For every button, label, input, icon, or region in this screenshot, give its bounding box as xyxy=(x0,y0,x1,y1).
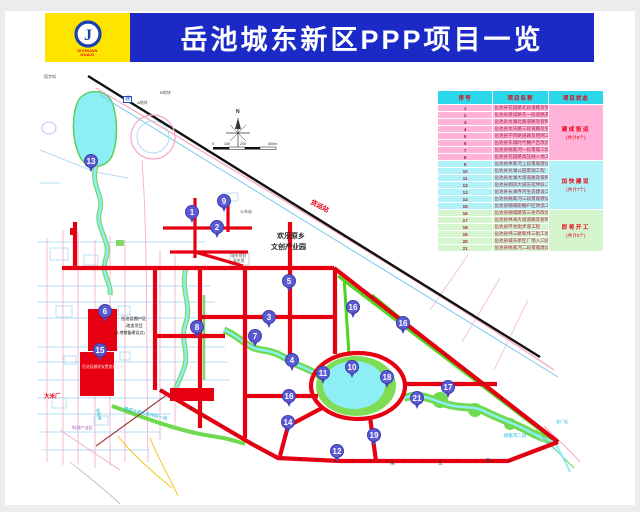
title-banner: 岳池城东新区PPP项目一览 xyxy=(130,13,594,62)
col-header-name: 项目名称 xyxy=(493,91,548,105)
project-name: 岳池县纬三路和纬三街工程 xyxy=(493,231,548,238)
logo-box: J SICHUAN HUAXI xyxy=(45,13,130,62)
svg-text:10: 10 xyxy=(348,363,357,372)
project-marker-14: 14 xyxy=(282,416,295,434)
page-title: 岳池城东新区PPP项目一览 xyxy=(180,18,543,57)
frame-left xyxy=(0,0,5,512)
svg-text:11: 11 xyxy=(319,369,328,378)
compass-rose xyxy=(226,118,250,148)
svg-text:4: 4 xyxy=(290,356,295,365)
svg-text:2: 2 xyxy=(215,223,220,232)
project-no: 2 xyxy=(438,112,493,119)
project-no: 5 xyxy=(438,133,493,140)
frame-right xyxy=(635,0,640,512)
poster-root: { "header": { "title": "岳池城东新区PPP项目一览", … xyxy=(0,0,640,512)
project-name: 岳池县姚家河二段景观建设工程 xyxy=(493,245,548,252)
svg-text:9: 9 xyxy=(222,197,227,206)
project-no: 20 xyxy=(438,238,493,245)
svg-text:16: 16 xyxy=(349,303,358,312)
project-marker-16: 16 xyxy=(397,317,410,335)
col-header-status: 项目状态 xyxy=(548,91,603,105)
svg-text:3: 3 xyxy=(267,313,272,322)
project-marker-4: 4 xyxy=(286,354,299,372)
project-name: 岳池县姚家河一段景观工程 xyxy=(493,147,548,154)
svg-text:16: 16 xyxy=(399,319,408,328)
project-name: 岳池县学府路道路及管网工程 xyxy=(493,133,548,140)
project-no: 1 xyxy=(438,105,493,112)
project-name: 岳池县顺城路等三条市政道路建设工程 xyxy=(493,210,548,217)
project-no: 10 xyxy=(438,168,493,175)
project-marker-5: 5 xyxy=(283,275,296,293)
project-no: 11 xyxy=(438,175,493,182)
svg-text:19: 19 xyxy=(370,431,379,440)
svg-text:16: 16 xyxy=(285,392,294,401)
project-marker-16: 16 xyxy=(283,390,296,408)
project-no: 16 xyxy=(438,210,493,217)
table-header-row: 序号 项目名称 项目状态 xyxy=(438,91,604,105)
project-name: 岳池县环龙街步道工程 xyxy=(493,224,548,231)
red-road-network xyxy=(62,222,558,461)
project-name: 岳池县建设路东一段道路及管网工程 xyxy=(493,112,548,119)
svg-text:8: 8 xyxy=(195,323,200,332)
boundary-ellipse xyxy=(42,122,56,134)
status-cell: 加快建设(共计7个) xyxy=(548,161,603,210)
svg-text:6: 6 xyxy=(103,307,108,316)
project-name: 岳池县花园路北段道路及管网工程 xyxy=(493,105,548,112)
project-no: 6 xyxy=(438,140,493,147)
project-name: 岳池县花园路高压线入地工程 xyxy=(493,154,548,161)
scale-bar xyxy=(213,147,276,150)
svg-text:7: 7 xyxy=(253,332,258,341)
project-row: 16岳池县顺城路等三条市政道路建设工程即将开工(共计6个) xyxy=(438,210,604,217)
svg-text:12: 12 xyxy=(333,447,342,456)
project-name: 岳池县龙湖北路道路及管网工程 xyxy=(493,119,548,126)
logo-letter: J xyxy=(84,27,92,44)
project-marker-2: 2 xyxy=(211,221,224,239)
project-no: 21 xyxy=(438,245,493,252)
project-no: 17 xyxy=(438,217,493,224)
project-name: 岳池县林海大道道路及管网工程 xyxy=(493,217,548,224)
parcel-south xyxy=(80,352,114,396)
yincheng-avenue-green xyxy=(112,406,245,444)
frame-bottom xyxy=(0,505,640,512)
green-road-v xyxy=(344,277,349,355)
svg-text:21: 21 xyxy=(413,394,422,403)
status-cell: 即将开工(共计6个) xyxy=(548,210,603,252)
col-header-no: 序号 xyxy=(438,91,493,105)
project-name: 岳池县城东新区广场入口道路提升改造工程 xyxy=(493,238,548,245)
project-no: 3 xyxy=(438,119,493,126)
svg-text:1: 1 xyxy=(190,208,195,217)
project-no: 9 xyxy=(438,161,493,168)
project-no: 8 xyxy=(438,154,493,161)
project-row: 1岳池县花园路北段道路及管网工程建成投运(共计8个) xyxy=(438,105,604,112)
project-name: 岳池县龙庆路三段道路及管网工程 xyxy=(493,126,548,133)
project-marker-19: 19 xyxy=(368,429,381,447)
project-name: 岳池县顺城街棚户区改造工程 xyxy=(493,203,548,210)
header: J SICHUAN HUAXI 岳池城东新区PPP项目一览 xyxy=(45,13,594,62)
project-name: 岳池县余家河上段景观建设工程 xyxy=(493,161,548,168)
project-name: 岳池县龙湖大道道路及管网工程 xyxy=(493,175,548,182)
project-no: 13 xyxy=(438,189,493,196)
svg-text:5: 5 xyxy=(287,277,292,286)
svg-text:17: 17 xyxy=(444,383,453,392)
status-cell: 建成投运(共计8个) xyxy=(548,105,603,161)
svg-text:18: 18 xyxy=(383,373,392,382)
planning-map: 13912516631687154101118171621141912 xyxy=(0,0,640,512)
project-no: 18 xyxy=(438,224,493,231)
project-no: 19 xyxy=(438,231,493,238)
project-table: 序号 项目名称 项目状态 1岳池县花园路北段道路及管网工程建成投运(共计8个)2… xyxy=(437,90,604,252)
logo-caption: SICHUAN HUAXI xyxy=(77,49,97,57)
project-name: 岳池县长滩寺河生态建设工程 xyxy=(493,189,548,196)
project-name: 岳池县东城时代棚户区改造工程 xyxy=(493,140,548,147)
northwest-lake xyxy=(73,92,116,167)
project-no: 4 xyxy=(438,126,493,133)
project-marker-3: 3 xyxy=(263,311,276,329)
parcel-east xyxy=(170,388,214,401)
project-marker-16: 16 xyxy=(347,301,360,319)
project-no: 12 xyxy=(438,182,493,189)
green-speck xyxy=(116,240,124,246)
svg-text:15: 15 xyxy=(96,346,105,355)
frame-top xyxy=(0,0,640,11)
project-marker-21: 21 xyxy=(411,392,424,410)
project-name: 岳池县翔凤大道东延伸段二期道路及管网工程 xyxy=(493,182,548,189)
project-name: 岳池县姚家河三段景观建设工程 xyxy=(493,196,548,203)
project-no: 15 xyxy=(438,203,493,210)
svg-text:14: 14 xyxy=(284,418,293,427)
svg-text:13: 13 xyxy=(87,157,96,166)
project-row: 9岳池县余家河上段景观建设工程加快建设(共计7个) xyxy=(438,161,604,168)
project-name: 岳池县龙湖公园景观工程 xyxy=(493,168,548,175)
project-no: 7 xyxy=(438,147,493,154)
company-logo-icon: J xyxy=(73,19,103,49)
project-no: 14 xyxy=(438,196,493,203)
